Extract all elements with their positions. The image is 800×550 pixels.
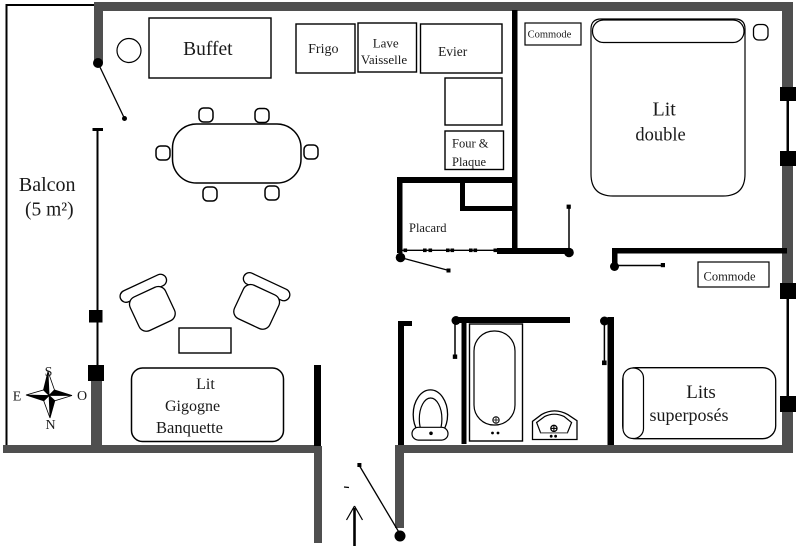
svg-text:Four &: Four &: [452, 137, 489, 151]
svg-text:Frigo: Frigo: [308, 42, 338, 57]
svg-text:Balcon: Balcon: [19, 174, 76, 196]
svg-text:(5 m²): (5 m²): [25, 200, 74, 221]
svg-text:Placard: Placard: [409, 221, 447, 235]
svg-text:Banquette: Banquette: [156, 418, 223, 437]
svg-text:Buffet: Buffet: [183, 39, 233, 60]
svg-text:O: O: [77, 389, 87, 404]
svg-text:Lits: Lits: [686, 382, 716, 403]
svg-text:Lit: Lit: [196, 376, 215, 393]
svg-text:S: S: [45, 365, 53, 380]
svg-text:double: double: [635, 125, 685, 145]
svg-text:superposés: superposés: [650, 405, 729, 425]
svg-text:Vaisselle: Vaisselle: [361, 52, 407, 67]
svg-text:E: E: [13, 390, 22, 405]
svg-text:Lave: Lave: [373, 36, 399, 51]
svg-text:Gigogne: Gigogne: [165, 398, 220, 415]
svg-text:N: N: [45, 418, 55, 433]
svg-text:Plaque: Plaque: [452, 155, 486, 169]
svg-text:Commode: Commode: [528, 30, 572, 41]
svg-text:Commode: Commode: [704, 270, 757, 284]
svg-text:Evier: Evier: [438, 44, 468, 59]
svg-text:Lit: Lit: [653, 99, 677, 121]
